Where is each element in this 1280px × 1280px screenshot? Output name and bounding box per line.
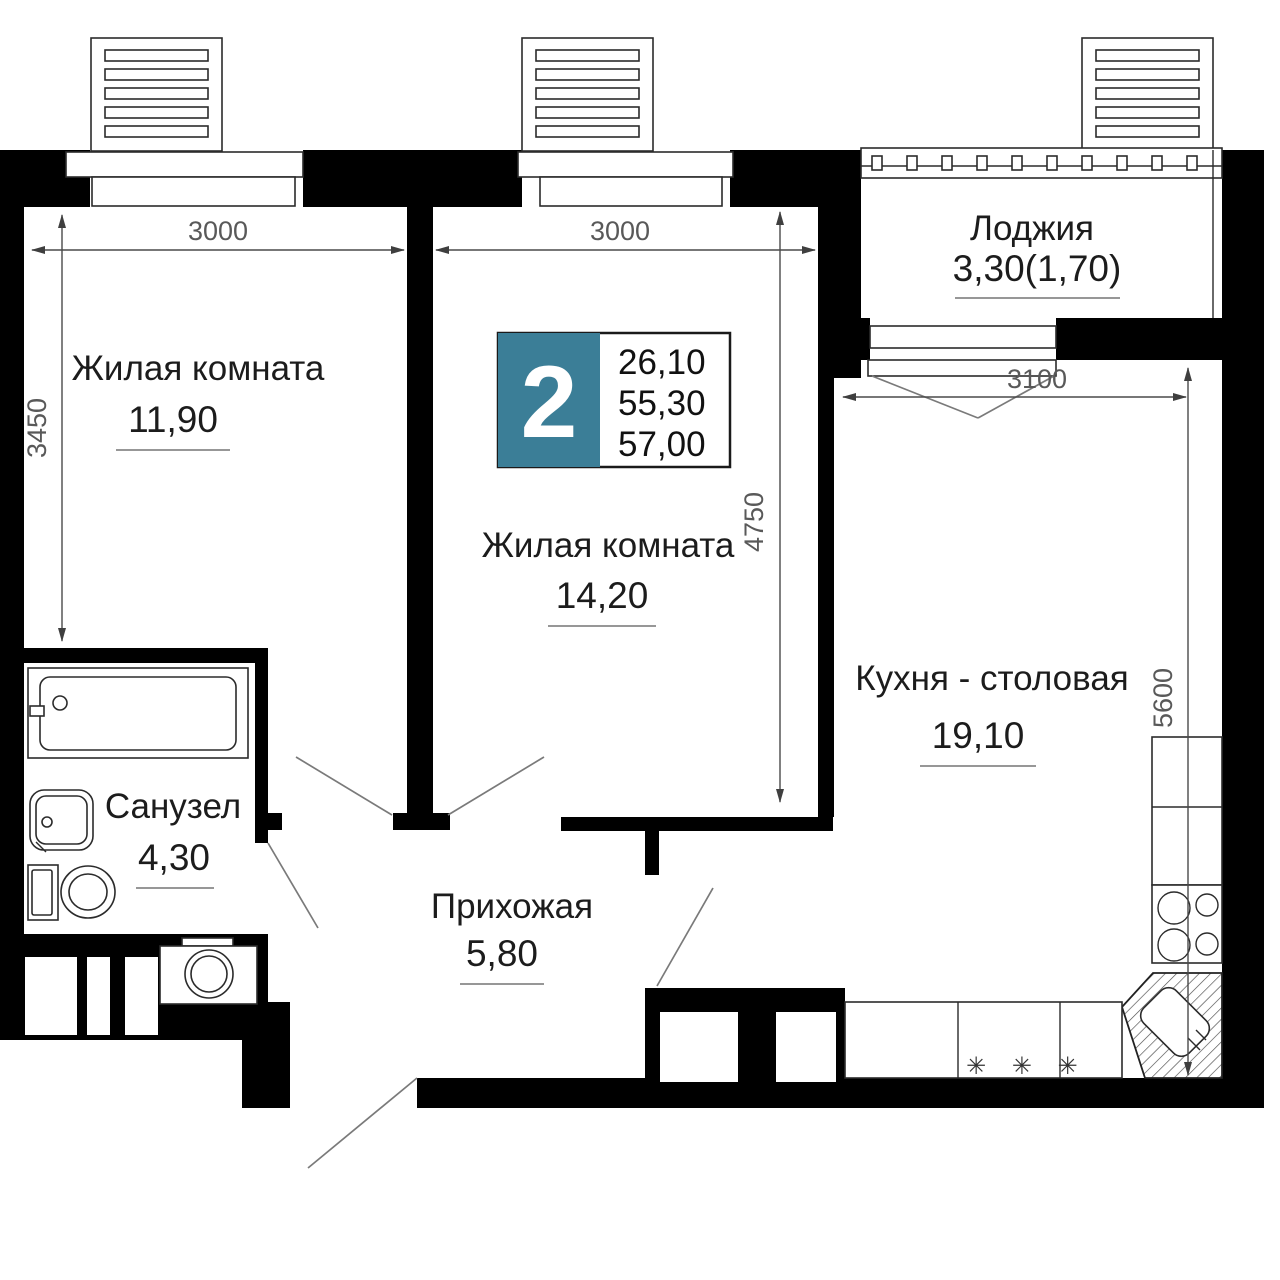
duct-niche <box>660 1012 738 1082</box>
room1-door <box>296 757 392 815</box>
room2-door <box>448 757 544 815</box>
bathtub-icon <box>28 668 248 758</box>
floor-plan-drawing: ✳ ✳ ✳ 3000 3000 3450 4750 3100 5600 Жила… <box>0 0 1280 1280</box>
wall-hall-kitchen <box>561 817 833 831</box>
window-room2 <box>540 177 722 206</box>
wall-bathroom-tab <box>268 813 282 830</box>
wall-room-divider <box>407 207 433 813</box>
loggia-area: 3,30(1,70) <box>953 248 1122 289</box>
wall-top-b <box>303 150 522 207</box>
room2-label: Жилая комната <box>482 526 735 565</box>
shaft-niche <box>87 957 110 1035</box>
toilet-icon <box>28 865 115 920</box>
sink-icon <box>30 790 93 852</box>
floor-plan-page: ✳ ✳ ✳ 3000 3000 3450 4750 3100 5600 Жила… <box>0 0 1280 1280</box>
kitchen-label: Кухня - столовая <box>855 659 1129 698</box>
room1-label: Жилая комната <box>72 349 325 388</box>
wall-entry-stub <box>242 1002 290 1108</box>
bathroom-area: 4,30 <box>138 837 210 878</box>
dim-kitchen-width: 3100 <box>1007 364 1067 394</box>
wall-right <box>1222 150 1264 1108</box>
wall-room-divider-foot <box>393 813 450 830</box>
wall-loggia-bottom-b <box>1056 318 1222 360</box>
badge-area-no-balcony: 55,30 <box>618 384 706 423</box>
hob-burners-icon: ✳ ✳ ✳ <box>966 1052 1087 1080</box>
kitchen-area: 19,10 <box>932 715 1025 756</box>
badge-area-total: 57,00 <box>618 425 706 464</box>
room1-area: 11,90 <box>128 399 218 440</box>
ac-unit-icon <box>522 38 653 151</box>
wall-top-c <box>730 150 818 207</box>
kitchen-fixtures: ✳ ✳ ✳ <box>845 737 1222 1080</box>
corner-sink-icon <box>1122 973 1222 1078</box>
ac-unit-icon <box>1082 38 1213 151</box>
shaft-niche <box>125 957 158 1035</box>
hallway-area: 5,80 <box>466 933 538 974</box>
badge-rooms-count: 2 <box>521 345 578 459</box>
stove-icon <box>1152 885 1222 963</box>
loggia-label: Лоджия <box>970 209 1094 248</box>
washing-machine-icon <box>160 938 257 1004</box>
apartment-badge: 2 26,10 55,30 57,00 <box>498 333 730 467</box>
kitchen-counter-right <box>1152 737 1222 885</box>
duct-niche <box>776 1012 836 1082</box>
dim-room2-depth: 4750 <box>739 492 769 552</box>
kitchen-door <box>657 888 713 986</box>
shaft-niche <box>25 957 77 1035</box>
badge-area-living: 26,10 <box>618 343 706 382</box>
ac-unit-icon <box>91 38 222 151</box>
hallway-label: Прихожая <box>431 887 593 926</box>
shaft-niches <box>25 957 836 1082</box>
window-sill-room2 <box>518 152 733 177</box>
bathroom-label: Санузел <box>105 787 241 826</box>
kitchen-counter-bottom: ✳ ✳ ✳ <box>845 1002 1122 1080</box>
wall-loggia-bottom-a <box>818 318 870 360</box>
dim-room1-depth: 3450 <box>22 398 52 458</box>
dim-room2-width: 3000 <box>590 216 650 246</box>
dim-kitchen-depth: 5600 <box>1148 668 1178 728</box>
wall-hall-kitchen-stub <box>645 831 659 875</box>
wall-bathroom-right <box>255 663 268 843</box>
bathroom-door <box>268 843 318 928</box>
dim-room1-width: 3000 <box>188 216 248 246</box>
wall-left <box>0 150 24 1040</box>
wall-kitchen-left <box>818 378 834 817</box>
window-sill-room1 <box>66 152 303 177</box>
window-room1 <box>92 177 295 206</box>
wall-bathroom-top <box>24 648 268 663</box>
entrance-door <box>308 1078 417 1168</box>
room2-area: 14,20 <box>556 575 649 616</box>
